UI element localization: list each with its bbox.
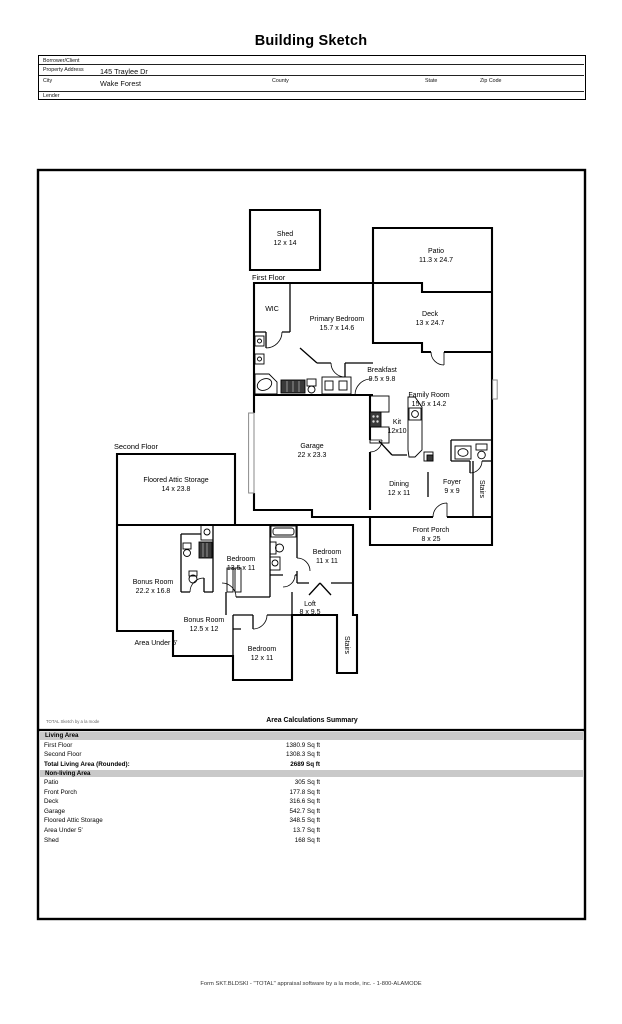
summary-row: Floored Attic Storage 348.5 Sq ft xyxy=(38,816,586,826)
total-value: 2689 Sq ft xyxy=(188,760,320,770)
room-label-bonus-a-dims: 22.2 x 16.8 xyxy=(136,588,171,595)
row-value: 542.7 Sq ft xyxy=(188,807,320,817)
floor-plan: First Floor Second Floor Shed 12 x 14 Pa… xyxy=(0,0,622,1024)
stairs-label-first-floor: Stairs xyxy=(478,480,485,498)
room-label-area-under-5: Area Under 5' xyxy=(135,640,178,647)
row-value: 305 Sq ft xyxy=(188,778,320,788)
room-label-kitchen-dims: 12x10 xyxy=(387,428,406,435)
row-label: First Floor xyxy=(44,741,72,751)
powder-room-fixtures xyxy=(455,444,487,459)
room-label-kitchen-name: Kit xyxy=(393,419,401,426)
row-value: 1380.9 Sq ft xyxy=(188,741,320,751)
row-value: 168 Sq ft xyxy=(188,836,320,846)
row-label: Area Under 5' xyxy=(44,826,83,836)
room-label-family-room-name: Family Room xyxy=(408,392,449,399)
room-label-garage-dims: 22 x 23.3 xyxy=(298,452,327,459)
summary-row: Garage 542.7 Sq ft xyxy=(38,807,586,817)
page: { "header": { "title": "Building Sketch"… xyxy=(0,0,622,1024)
living-area-rows: First Floor 1380.9 Sq ft Second Floor 13… xyxy=(38,741,586,770)
door-arcs xyxy=(190,332,482,629)
room-label-patio-name: Patio xyxy=(428,248,444,255)
room-label-dining-name: Dining xyxy=(389,481,409,488)
summary-row: Second Floor 1308.3 Sq ft xyxy=(38,750,586,760)
living-area-header: Living Area xyxy=(40,732,583,740)
room-label-breakfast-dims: 9.5 x 9.8 xyxy=(369,376,396,383)
room-label-loft-dims: 8 x 9.5 xyxy=(299,609,320,616)
nonliving-area-rows: Patio 305 Sq ft Front Porch 177.8 Sq ft … xyxy=(38,778,586,845)
room-label-bedroom-a-dims: 13.5 x 11 xyxy=(227,565,255,572)
room-label-shed-name: Shed xyxy=(277,231,293,238)
room-label-bonus-a-name: Bonus Room xyxy=(133,579,174,586)
bath-fixtures xyxy=(255,336,351,394)
room-label-loft-name: Loft xyxy=(304,601,316,608)
first-floor-label: First Floor xyxy=(252,273,286,282)
room-label-bedroom-b-dims: 11 x 11 xyxy=(316,558,338,565)
room-label-bedroom-a-name: Bedroom xyxy=(227,556,256,563)
total-label: Total Living Area (Rounded): xyxy=(44,760,130,770)
summary-row: Deck 316.6 Sq ft xyxy=(38,797,586,807)
room-label-shed-dims: 12 x 14 xyxy=(274,240,297,247)
room-label-breakfast-name: Breakfast xyxy=(367,367,397,374)
summary-row: Patio 305 Sq ft xyxy=(38,778,586,788)
row-label: Second Floor xyxy=(44,750,81,760)
row-value: 1308.3 Sq ft xyxy=(188,750,320,760)
room-label-primary-bedroom-dims: 15.7 x 14.6 xyxy=(320,325,355,332)
interior-walls xyxy=(181,283,492,656)
room-label-deck-name: Deck xyxy=(422,311,438,318)
room-label-attic-name: Floored Attic Storage xyxy=(143,477,208,484)
room-label-bedroom-b-name: Bedroom xyxy=(313,549,342,556)
room-label-front-porch-name: Front Porch xyxy=(413,527,450,534)
row-value: 316.6 Sq ft xyxy=(188,797,320,807)
room-label-deck-dims: 13 x 24.7 xyxy=(416,320,445,327)
form-footer: Form SKT.BLDSKI - "TOTAL" appraisal soft… xyxy=(0,981,622,987)
second-floor-label: Second Floor xyxy=(114,442,158,451)
room-label-garage-name: Garage xyxy=(300,443,323,450)
summary-row: Front Porch 177.8 Sq ft xyxy=(38,788,586,798)
room-label-family-room-dims: 15.6 x 14.2 xyxy=(412,401,447,408)
room-label-front-porch-dims: 8 x 25 xyxy=(421,536,440,543)
family-room-window xyxy=(493,380,498,399)
row-value: 177.8 Sq ft xyxy=(188,788,320,798)
room-labels: Shed 12 x 14 Patio 11.3 x 24.7 Deck 13 x… xyxy=(133,231,485,662)
room-label-dining-dims: 12 x 11 xyxy=(388,490,411,497)
room-label-bedroom-c-dims: 12 x 11 xyxy=(251,655,274,662)
summary-row: Shed 168 Sq ft xyxy=(38,836,586,846)
room-label-bedroom-c-name: Bedroom xyxy=(248,646,277,653)
summary-row: First Floor 1380.9 Sq ft xyxy=(38,741,586,751)
summary-row: Area Under 5' 13.7 Sq ft xyxy=(38,826,586,836)
stairs-label-second-floor: Stairs xyxy=(343,636,350,654)
row-label: Patio xyxy=(44,778,58,788)
room-label-foyer-dims: 9 x 9 xyxy=(444,488,459,495)
summary-title: Area Calculations Summary xyxy=(38,717,586,724)
row-label: Garage xyxy=(44,807,65,817)
row-label: Shed xyxy=(44,836,59,846)
nonliving-area-header: Non-living Area xyxy=(40,770,583,778)
total-living-area-row: Total Living Area (Rounded): 2689 Sq ft xyxy=(38,760,586,770)
room-label-wic: WIC xyxy=(265,306,279,313)
row-value: 348.5 Sq ft xyxy=(188,816,320,826)
row-label: Floored Attic Storage xyxy=(44,816,103,826)
room-label-bonus-b-name: Bonus Room xyxy=(184,617,225,624)
room-label-attic-dims: 14 x 23.8 xyxy=(162,486,191,493)
room-label-bonus-b-dims: 12.5 x 12 xyxy=(190,626,219,633)
room-label-patio-dims: 11.3 x 24.7 xyxy=(419,257,453,264)
garage-door xyxy=(249,413,254,493)
row-value: 13.7 Sq ft xyxy=(188,826,320,836)
room-label-foyer-name: Foyer xyxy=(443,479,462,486)
room-label-primary-bedroom-name: Primary Bedroom xyxy=(310,316,365,323)
row-label: Front Porch xyxy=(44,788,77,798)
row-label: Deck xyxy=(44,797,58,807)
